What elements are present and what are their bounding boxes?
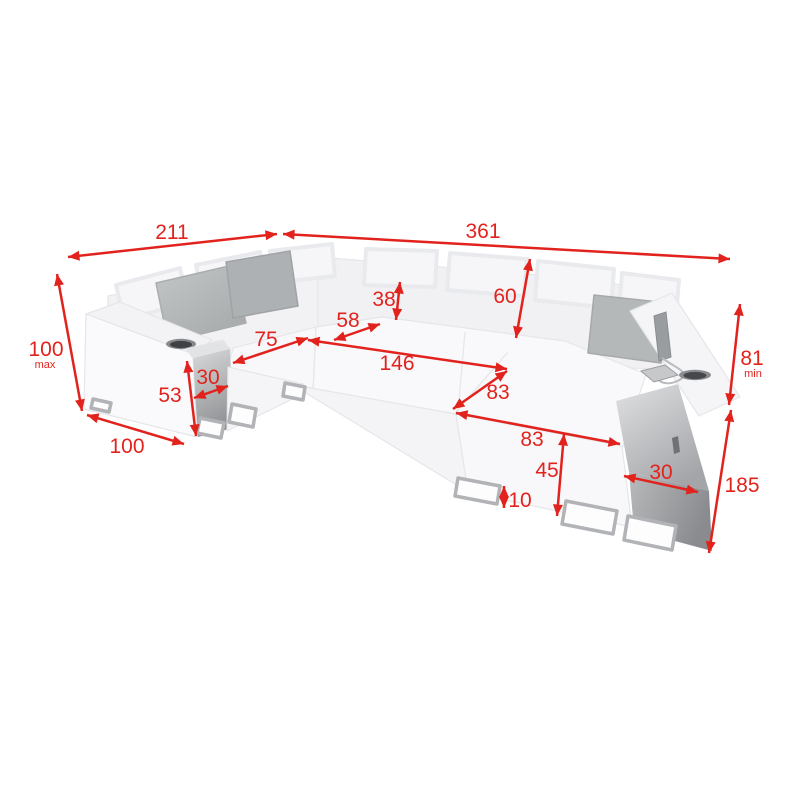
dim-label: 60	[493, 285, 516, 308]
dim-height-max: 100 max	[28, 274, 82, 411]
sofa-illustration	[84, 244, 740, 551]
dim-right-back-width: 361	[283, 220, 730, 259]
dim-left-back-width: 211	[68, 221, 277, 257]
dim-label-suffix: min	[744, 368, 762, 380]
dim-label: 100	[28, 338, 63, 361]
dim-label: 185	[724, 474, 759, 497]
dim-label: 81	[740, 347, 763, 370]
dim-label: 361	[465, 220, 500, 243]
throw-pillow	[226, 251, 298, 318]
dim-label: 83	[520, 428, 543, 451]
dim-label-suffix: max	[35, 359, 56, 371]
sofa-leg	[197, 418, 224, 438]
dim-label: 10	[508, 489, 531, 512]
sofa-dimension-diagram: 211 361 100 max 100 53 30 75	[0, 0, 800, 800]
dim-leg-height: 10	[504, 486, 532, 512]
dim-label: 38	[372, 288, 395, 311]
dim-label: 58	[336, 309, 359, 332]
sofa-leg	[91, 399, 111, 412]
sofa-leg	[283, 383, 305, 400]
cup-holder-left-recess	[170, 341, 192, 348]
dim-label: 83	[486, 381, 509, 404]
dim-label: 75	[254, 328, 277, 351]
dim-label: 211	[155, 221, 188, 244]
dim-label: 30	[649, 461, 672, 484]
dim-label: 45	[535, 459, 558, 482]
sofa-leg	[229, 404, 256, 427]
dim-right-side-length: 185	[709, 410, 760, 553]
cup-holder-right-recess	[684, 372, 707, 379]
diagram-canvas: 211 361 100 max 100 53 30 75	[0, 0, 800, 800]
dim-label: 53	[158, 384, 181, 407]
dim-label: 30	[196, 366, 219, 389]
dim-label: 146	[379, 352, 414, 375]
headrest-cushion	[364, 249, 437, 287]
dim-label: 100	[109, 435, 144, 458]
